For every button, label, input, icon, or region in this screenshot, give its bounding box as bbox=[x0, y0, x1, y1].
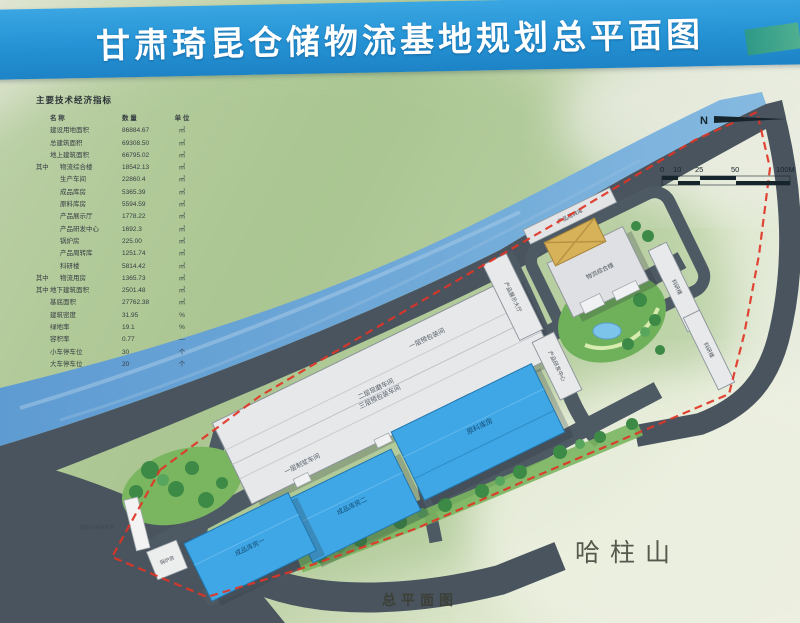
svg-text:100M: 100M bbox=[776, 165, 795, 174]
table-row: 小车停车位30个 bbox=[36, 346, 206, 358]
table-row: 产品研发中心1692.3㎡ bbox=[36, 223, 206, 235]
site-plan-photo: 一层预包装间 二层现磨车间 三层预包装车间 一层制浆车间 原料库房 成品库房二 … bbox=[0, 0, 800, 623]
svg-text:0: 0 bbox=[660, 165, 664, 174]
indicators-header: 名 称 数 量 单 位 bbox=[36, 112, 206, 124]
table-row: 地上建筑面积66795.02㎡ bbox=[36, 149, 206, 161]
table-row: 绿地率19.1% bbox=[36, 321, 206, 333]
drawing-caption: 总平面图 bbox=[340, 590, 500, 610]
svg-text:10: 10 bbox=[673, 165, 681, 174]
table-row: 基底面积27762.38㎡ bbox=[36, 296, 206, 308]
table-row: 产品展示厅1778.22㎡ bbox=[36, 210, 206, 222]
indicators-table: 主要技术经济指标 名 称 数 量 单 位 建设用地面积86884.67㎡总建筑面… bbox=[36, 94, 206, 370]
table-row: 产品周转库1251.74㎡ bbox=[36, 247, 206, 259]
indicators-rows: 建设用地面积86884.67㎡总建筑面积69308.50㎡地上建筑面积66795… bbox=[36, 124, 206, 370]
table-row: 其中地下建筑面积2501.48㎡ bbox=[36, 284, 206, 296]
table-row: 建设用地面积86884.67㎡ bbox=[36, 124, 206, 136]
table-row: 成品库房5365.39㎡ bbox=[36, 186, 206, 198]
table-row: 科研楼5814.42㎡ bbox=[36, 260, 206, 272]
col-unit: 单 位 bbox=[172, 112, 192, 122]
table-row: 总建筑面积69308.50㎡ bbox=[36, 137, 206, 149]
table-row: 其中物流用房1365.73㎡ bbox=[36, 272, 206, 284]
pond bbox=[593, 323, 621, 339]
svg-text:25: 25 bbox=[695, 165, 703, 174]
table-row: 锅炉房225.00㎡ bbox=[36, 235, 206, 247]
svg-text:50: 50 bbox=[731, 165, 739, 174]
table-row: 其中物流综合楼18542.13㎡ bbox=[36, 161, 206, 173]
fire-pool-label: 消防水池及泵房 bbox=[79, 524, 114, 531]
table-row: 建筑密度31.95% bbox=[36, 309, 206, 321]
svg-text:N: N bbox=[700, 115, 708, 127]
table-row: 大车停车位20个 bbox=[36, 358, 206, 370]
page-title: 甘肃琦昆仓储物流基地规划总平面图 bbox=[96, 7, 705, 68]
table-row: 原料库房5594.59㎡ bbox=[36, 198, 206, 210]
table-row: 容积率0.77— bbox=[36, 333, 206, 345]
indicators-title: 主要技术经济指标 bbox=[36, 94, 206, 106]
col-name: 名 称 bbox=[50, 112, 122, 122]
col-qty: 数 量 bbox=[122, 112, 172, 122]
mountain-label: 哈柱山 bbox=[575, 533, 680, 569]
table-row: 生产车间22860.4㎡ bbox=[36, 173, 206, 185]
